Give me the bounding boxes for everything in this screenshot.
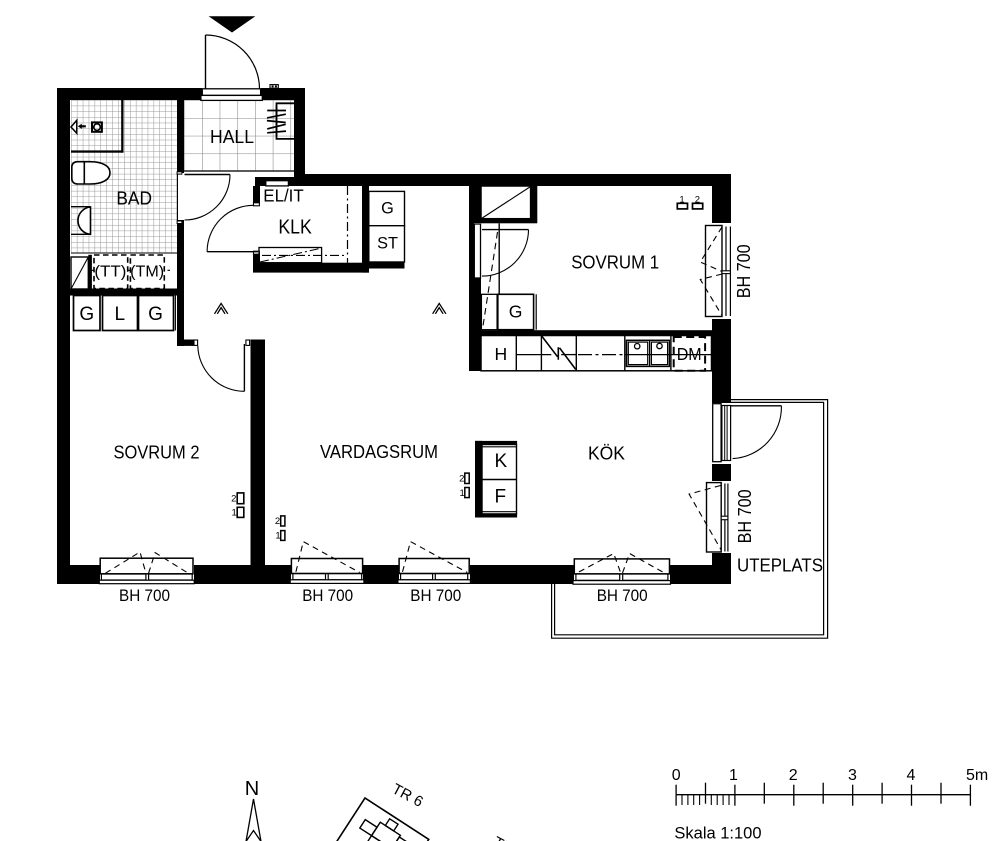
svg-text:1: 1 xyxy=(460,488,465,499)
svg-text:KLK: KLK xyxy=(278,217,312,239)
svg-text:SOVRUM 1: SOVRUM 1 xyxy=(571,252,659,273)
svg-text:2: 2 xyxy=(789,767,798,784)
svg-text:BH 700: BH 700 xyxy=(735,489,755,543)
svg-text:1: 1 xyxy=(679,195,684,206)
svg-text:BH 700: BH 700 xyxy=(410,586,461,605)
svg-text:SOVRUM 2: SOVRUM 2 xyxy=(114,442,200,463)
svg-text:5m: 5m xyxy=(966,767,988,784)
svg-text:BH 700: BH 700 xyxy=(734,244,754,298)
svg-text:2: 2 xyxy=(695,195,700,206)
svg-text:BH 700: BH 700 xyxy=(302,586,353,605)
svg-text:(TM): (TM) xyxy=(130,264,164,281)
svg-text:EL/IT: EL/IT xyxy=(263,185,304,205)
svg-text:BH 700: BH 700 xyxy=(597,586,648,605)
svg-text:DM: DM xyxy=(677,344,702,364)
svg-text:UTEPLATS: UTEPLATS xyxy=(737,554,823,575)
svg-text:F: F xyxy=(494,487,506,508)
svg-text:2: 2 xyxy=(231,494,236,505)
svg-text:BAD: BAD xyxy=(116,188,152,209)
svg-text:4: 4 xyxy=(907,767,916,784)
svg-text:KÖK: KÖK xyxy=(588,442,626,463)
svg-text:G: G xyxy=(381,199,394,217)
svg-text:3: 3 xyxy=(848,767,857,784)
svg-text:Skala 1:100: Skala 1:100 xyxy=(674,825,761,841)
svg-text:1: 1 xyxy=(275,531,280,542)
svg-text:K: K xyxy=(494,451,507,472)
svg-text:1: 1 xyxy=(232,508,237,519)
svg-text:N: N xyxy=(245,778,259,800)
svg-text:G: G xyxy=(79,304,94,325)
svg-text:HALL: HALL xyxy=(210,126,254,147)
svg-text:BH 700: BH 700 xyxy=(119,586,170,605)
svg-text:1: 1 xyxy=(729,767,738,784)
svg-text:0: 0 xyxy=(672,767,681,784)
svg-text:2: 2 xyxy=(459,474,464,485)
svg-text:H: H xyxy=(495,344,508,364)
svg-text:L: L xyxy=(115,304,126,325)
svg-text:ST: ST xyxy=(377,234,398,252)
svg-text:VARDAGSRUM: VARDAGSRUM xyxy=(320,441,438,462)
svg-text:(TT): (TT) xyxy=(94,264,126,281)
svg-text:G: G xyxy=(148,304,163,325)
svg-text:G: G xyxy=(509,302,523,322)
svg-text:2: 2 xyxy=(275,516,280,527)
